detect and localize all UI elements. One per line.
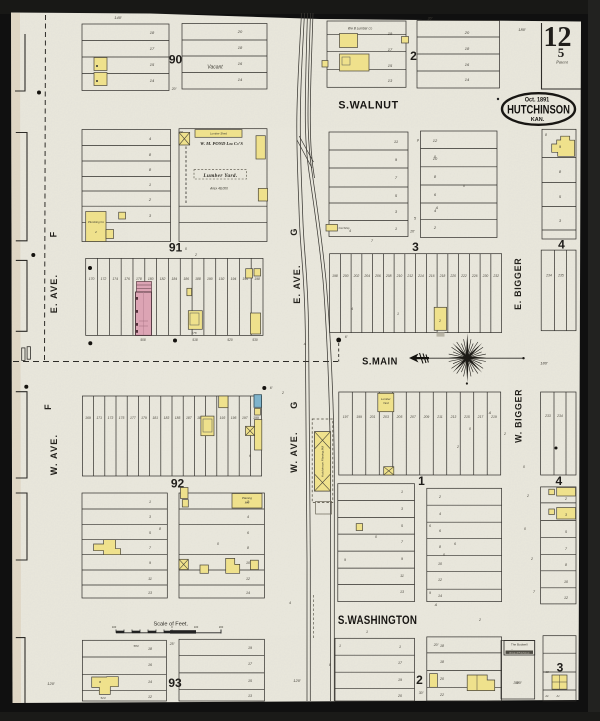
- svg-text:186: 186: [183, 277, 189, 281]
- svg-text:1: 1: [399, 645, 401, 649]
- svg-text:21: 21: [544, 694, 549, 698]
- svg-text:214: 214: [417, 274, 424, 278]
- svg-text:2: 2: [564, 497, 567, 501]
- svg-text:172: 172: [101, 277, 107, 281]
- svg-text:230: 230: [482, 274, 489, 278]
- svg-text:8: 8: [159, 527, 161, 531]
- svg-text:14: 14: [148, 680, 152, 684]
- svg-text:11: 11: [148, 577, 152, 581]
- svg-text:2: 2: [530, 557, 533, 561]
- svg-text:12: 12: [564, 596, 568, 600]
- svg-text:13: 13: [400, 590, 404, 594]
- svg-text:211: 211: [436, 415, 443, 419]
- svg-text:207: 207: [409, 415, 416, 419]
- svg-text:10: 10: [438, 562, 442, 566]
- svg-text:0: 0: [443, 553, 445, 557]
- svg-text:1: 1: [397, 312, 399, 316]
- svg-text:20′: 20′: [433, 643, 439, 647]
- svg-text:190: 190: [207, 277, 213, 281]
- svg-text:1: 1: [149, 182, 151, 187]
- svg-text:181: 181: [152, 416, 158, 420]
- svg-text:3: 3: [149, 515, 151, 519]
- svg-text:0: 0: [523, 465, 525, 469]
- svg-text:177: 177: [130, 416, 136, 420]
- svg-text:20: 20: [439, 677, 444, 681]
- svg-text:170: 170: [89, 277, 95, 281]
- svg-text:198: 198: [254, 277, 260, 281]
- svg-text:20: 20: [237, 29, 243, 34]
- svg-text:18: 18: [465, 46, 470, 51]
- svg-text:A: A: [435, 206, 439, 210]
- svg-text:HUTCHINSON: HUTCHINSON: [507, 104, 570, 117]
- svg-text:175: 175: [119, 416, 125, 420]
- svg-text:120′: 120′: [47, 681, 55, 686]
- svg-text:219: 219: [490, 415, 497, 419]
- svg-text:4: 4: [247, 515, 249, 519]
- svg-text:Lumber Shed: Lumber Shed: [210, 132, 227, 136]
- svg-text:2: 2: [194, 253, 197, 257]
- svg-text:12: 12: [148, 695, 152, 699]
- svg-text:17: 17: [388, 47, 393, 52]
- svg-text:3: 3: [412, 240, 419, 254]
- svg-text:Yard: Yard: [383, 401, 389, 405]
- svg-text:8: 8: [545, 133, 547, 137]
- svg-text:212: 212: [406, 274, 413, 278]
- svg-text:171: 171: [96, 416, 102, 420]
- svg-text:4: 4: [351, 307, 353, 311]
- svg-text:30′: 30′: [419, 691, 424, 695]
- svg-text:E. AVE.: E. AVE.: [49, 274, 59, 313]
- svg-text:2: 2: [94, 230, 97, 234]
- svg-text:6: 6: [429, 524, 431, 528]
- svg-text:4: 4: [289, 601, 291, 605]
- svg-text:0: 0: [217, 542, 219, 546]
- svg-text:100: 100: [112, 625, 117, 629]
- svg-text:S.WALNUT: S.WALNUT: [338, 99, 398, 111]
- svg-text:3: 3: [401, 507, 403, 511]
- svg-text:6: 6: [249, 454, 251, 458]
- svg-text:10: 10: [545, 670, 549, 674]
- svg-text:W. BIGGER: W. BIGGER: [514, 389, 524, 443]
- svg-text:204: 204: [363, 274, 370, 278]
- svg-text:2: 2: [281, 391, 284, 395]
- svg-text:182: 182: [160, 277, 166, 281]
- svg-text:176: 176: [124, 277, 130, 281]
- svg-text:6: 6: [247, 531, 249, 535]
- svg-text:0: 0: [524, 527, 526, 531]
- svg-text:178: 178: [191, 331, 196, 335]
- svg-text:18: 18: [148, 647, 152, 651]
- svg-text:W. AVE.: W. AVE.: [289, 431, 299, 472]
- svg-text:12: 12: [438, 578, 442, 582]
- svg-text:4: 4: [439, 512, 441, 516]
- svg-text:220: 220: [449, 274, 456, 278]
- svg-text:187: 187: [186, 416, 192, 420]
- svg-text:Hutchinson Planing Mill: Hutchinson Planing Mill: [321, 446, 325, 478]
- svg-text:5: 5: [565, 530, 567, 534]
- svg-text:0: 0: [375, 535, 377, 539]
- svg-text:5: 5: [149, 531, 151, 535]
- svg-text:3: 3: [557, 661, 564, 675]
- svg-text:A: A: [434, 603, 438, 607]
- svg-text:205: 205: [396, 415, 403, 419]
- svg-text:235: 235: [557, 274, 564, 278]
- svg-text:The Bodwell: The Bodwell: [511, 643, 528, 647]
- svg-text:1: 1: [418, 474, 425, 488]
- svg-text:19: 19: [388, 31, 393, 36]
- svg-text:200: 200: [219, 625, 224, 629]
- svg-text:1: 1: [401, 490, 403, 494]
- svg-text:530: 530: [252, 338, 258, 342]
- svg-text:4: 4: [555, 474, 562, 488]
- svg-text:6′: 6′: [270, 386, 273, 390]
- svg-text:90′: 90′: [516, 680, 521, 685]
- svg-text:20′: 20′: [427, 17, 433, 21]
- svg-text:p: p: [416, 138, 419, 142]
- svg-text:217: 217: [477, 415, 484, 419]
- svg-text:234: 234: [556, 414, 563, 418]
- svg-text:Library of Hutchinson: Library of Hutchinson: [509, 651, 530, 654]
- svg-text:185: 185: [175, 416, 181, 420]
- svg-text:234: 234: [545, 274, 552, 278]
- svg-text:120′: 120′: [293, 678, 301, 683]
- svg-text:15: 15: [388, 63, 393, 68]
- svg-text:100: 100: [194, 625, 199, 629]
- svg-text:179: 179: [141, 416, 147, 420]
- svg-text:6: 6: [439, 529, 441, 533]
- svg-text:Oct. 1891: Oct. 1891: [525, 97, 550, 103]
- svg-text:9: 9: [429, 591, 431, 595]
- svg-text:0: 0: [469, 427, 471, 431]
- svg-text:14: 14: [246, 591, 250, 595]
- svg-text:0: 0: [434, 155, 436, 159]
- svg-text:0: 0: [463, 184, 465, 188]
- svg-text:3: 3: [565, 513, 567, 517]
- svg-text:2: 2: [526, 494, 529, 498]
- svg-text:201: 201: [369, 415, 376, 419]
- svg-text:Lumber Yard.: Lumber Yard.: [202, 173, 237, 179]
- svg-text:90: 90: [169, 53, 183, 67]
- svg-text:15: 15: [248, 679, 252, 683]
- svg-text:203: 203: [382, 415, 389, 419]
- svg-text:9: 9: [401, 557, 403, 561]
- svg-text:20: 20: [464, 30, 470, 35]
- svg-text:S.WASHINGTON: S.WASHINGTON: [338, 614, 417, 627]
- svg-text:18: 18: [150, 30, 155, 35]
- svg-text:2: 2: [478, 618, 481, 622]
- svg-text:14: 14: [150, 78, 155, 83]
- svg-text:WM B Lumber CO: WM B Lumber CO: [348, 27, 373, 31]
- svg-text:209: 209: [423, 415, 430, 419]
- svg-text:18: 18: [238, 45, 243, 50]
- svg-text:4: 4: [349, 229, 351, 233]
- svg-text:183: 183: [164, 416, 170, 420]
- svg-text:F: F: [43, 403, 53, 410]
- svg-text:192: 192: [219, 277, 225, 281]
- svg-text:10: 10: [246, 561, 250, 565]
- svg-text:1: 1: [366, 630, 368, 634]
- svg-text:180′: 180′: [518, 27, 526, 32]
- svg-text:14: 14: [238, 77, 243, 82]
- svg-text:2: 2: [246, 500, 249, 504]
- svg-text:S.MAIN: S.MAIN: [362, 356, 398, 367]
- svg-text:1: 1: [149, 500, 151, 504]
- svg-text:197: 197: [343, 415, 349, 419]
- svg-text:508: 508: [140, 338, 146, 342]
- svg-text:E. AVE.: E. AVE.: [292, 264, 302, 303]
- svg-text:199: 199: [356, 415, 362, 419]
- svg-text:17: 17: [150, 46, 155, 51]
- svg-text:W. M. POND LBR CO’S: W. M. POND LBR CO’S: [200, 141, 243, 146]
- svg-text:20: 20: [397, 694, 402, 698]
- svg-text:518: 518: [192, 338, 198, 342]
- svg-text:Vacant: Vacant: [207, 65, 223, 71]
- svg-text:198: 198: [332, 274, 338, 278]
- svg-text:B: B: [99, 680, 101, 684]
- svg-text:8: 8: [247, 546, 249, 550]
- svg-text:E. BIGGER: E. BIGGER: [513, 258, 523, 310]
- svg-text:208: 208: [385, 274, 392, 278]
- svg-text:218: 218: [439, 274, 446, 278]
- svg-text:16: 16: [465, 62, 470, 67]
- svg-text:174: 174: [112, 277, 118, 281]
- svg-text:194: 194: [231, 277, 237, 281]
- svg-text:226: 226: [471, 274, 478, 278]
- svg-text:13: 13: [148, 591, 152, 595]
- svg-text:W. AVE.: W. AVE.: [49, 434, 59, 475]
- svg-text:2: 2: [503, 432, 506, 436]
- svg-text:4: 4: [558, 238, 565, 252]
- svg-text:5: 5: [558, 45, 565, 60]
- svg-text:Patent: Patent: [555, 60, 568, 65]
- svg-text:25′: 25′: [169, 642, 175, 646]
- svg-text:AREA 48,000: AREA 48,000: [209, 187, 228, 191]
- svg-text:18: 18: [440, 660, 444, 664]
- svg-text:213: 213: [450, 415, 457, 419]
- svg-text:6: 6: [454, 542, 456, 546]
- svg-text:1: 1: [395, 226, 397, 231]
- svg-text:..: ..: [511, 647, 513, 651]
- svg-text:210: 210: [396, 274, 403, 278]
- svg-text:G: G: [289, 400, 299, 408]
- svg-text:583: 583: [133, 644, 138, 648]
- svg-text:KAN.: KAN.: [531, 117, 545, 123]
- svg-text:9: 9: [344, 558, 346, 562]
- svg-text:8: 8: [439, 545, 441, 549]
- svg-text:215: 215: [463, 415, 470, 419]
- svg-text:11: 11: [400, 574, 404, 578]
- svg-text:173: 173: [108, 416, 114, 420]
- svg-text:180′: 180′: [540, 361, 548, 366]
- svg-text:140′: 140′: [114, 15, 122, 20]
- svg-text:184: 184: [172, 277, 178, 281]
- svg-text:22: 22: [439, 693, 444, 697]
- svg-text:A: A: [303, 342, 307, 346]
- svg-text:232: 232: [492, 274, 499, 278]
- svg-text:F: F: [49, 231, 59, 238]
- svg-text:Plumbing Co: Plumbing Co: [88, 220, 104, 224]
- svg-text:202: 202: [353, 274, 360, 278]
- svg-text:9: 9: [149, 561, 151, 565]
- svg-text:169: 169: [85, 416, 91, 420]
- svg-text:6′: 6′: [345, 335, 348, 339]
- svg-text:188: 188: [195, 277, 201, 281]
- svg-text:8: 8: [565, 563, 567, 567]
- svg-text:233: 233: [544, 414, 551, 418]
- svg-text:16: 16: [238, 61, 243, 66]
- svg-text:2: 2: [456, 445, 459, 449]
- svg-text:G: G: [289, 227, 299, 235]
- svg-text:15: 15: [150, 62, 155, 67]
- svg-text:93: 93: [168, 676, 182, 690]
- svg-text:180: 180: [148, 277, 154, 281]
- svg-text:19: 19: [398, 678, 402, 682]
- svg-text:2: 2: [439, 319, 441, 323]
- svg-text:20′: 20′: [409, 230, 415, 234]
- svg-text:14: 14: [465, 77, 470, 82]
- svg-text:178: 178: [136, 277, 142, 281]
- svg-text:8: 8: [329, 663, 331, 667]
- svg-text:200: 200: [342, 274, 349, 278]
- svg-text:14: 14: [438, 594, 442, 598]
- svg-text:A: A: [488, 411, 492, 415]
- svg-text:13: 13: [388, 78, 393, 83]
- svg-text:193: 193: [220, 416, 226, 420]
- svg-text:2: 2: [438, 495, 441, 499]
- svg-text:12: 12: [246, 577, 250, 581]
- svg-text:520: 520: [227, 338, 233, 342]
- svg-text:18: 18: [440, 644, 444, 648]
- svg-text:12: 12: [433, 138, 438, 143]
- svg-text:19: 19: [248, 646, 252, 650]
- svg-text:10: 10: [564, 580, 568, 584]
- svg-text:195: 195: [231, 416, 237, 420]
- svg-text:20′: 20′: [171, 87, 177, 91]
- svg-text:2: 2: [410, 49, 417, 63]
- svg-text:216: 216: [428, 274, 435, 278]
- svg-text:16: 16: [148, 663, 152, 667]
- svg-text:5: 5: [401, 524, 403, 528]
- svg-text:70′: 70′: [179, 130, 183, 134]
- svg-text:222: 222: [460, 274, 467, 278]
- svg-text:11: 11: [394, 139, 398, 144]
- svg-text:13: 13: [248, 694, 252, 698]
- svg-text:1: 1: [339, 644, 341, 648]
- svg-text:0: 0: [185, 247, 187, 251]
- svg-text:2: 2: [416, 673, 423, 687]
- svg-text:523: 523: [100, 696, 105, 700]
- svg-text:91: 91: [169, 241, 183, 255]
- svg-text:197: 197: [242, 416, 248, 420]
- svg-text:206: 206: [374, 274, 381, 278]
